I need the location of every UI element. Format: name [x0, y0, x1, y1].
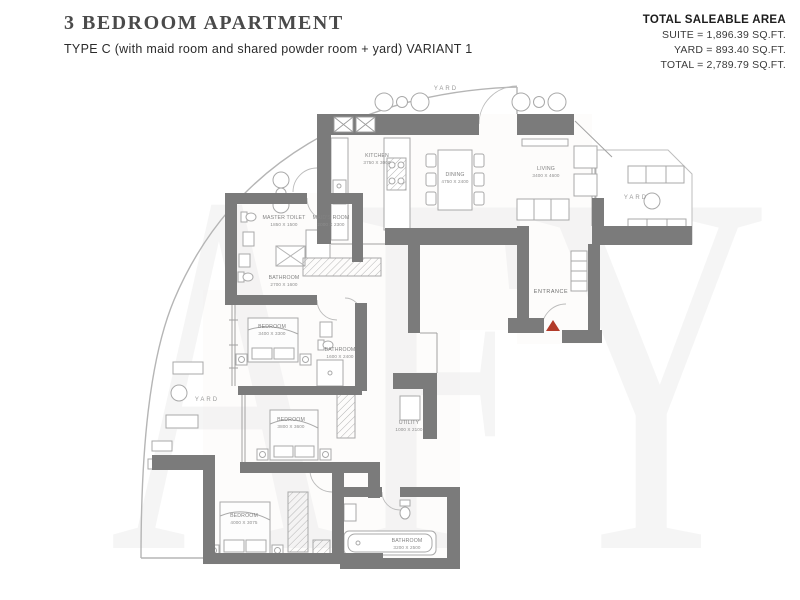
floor-plan-drawing: AFY [0, 0, 800, 600]
room-label-bathroom-3: BATHROOM [392, 538, 423, 544]
area-heading: TOTAL SALEABLE AREA [643, 14, 786, 26]
room-label-living: LIVING [537, 166, 555, 172]
wardrobe-icon [303, 258, 381, 276]
area-suite: SUITE = 1,896.39 SQ.FT. [643, 29, 786, 41]
cabinet-icon [313, 540, 330, 554]
washer-icon [400, 396, 420, 420]
header: 3 BEDROOM APARTMENT TYPE C (with maid ro… [64, 12, 473, 56]
svg-text:1850 X 1500: 1850 X 1500 [270, 222, 298, 227]
svg-text:3400 X 3300: 3400 X 3300 [258, 331, 286, 336]
svg-text:3750 X 3000: 3750 X 3000 [363, 160, 391, 165]
svg-text:1000 X 2100: 1000 X 2100 [395, 427, 423, 432]
wardrobe-icon [337, 392, 355, 438]
yard-label-top: YARD [434, 86, 458, 92]
svg-text:2000 X 2300: 2000 X 2300 [317, 222, 345, 227]
room-label-bedroom-3: BEDROOM [230, 513, 258, 519]
area-yard: YARD = 893.40 SQ.FT. [643, 44, 786, 56]
room-label-kitchen: KITCHEN [365, 153, 389, 159]
saleable-area-summary: TOTAL SALEABLE AREA SUITE = 1,896.39 SQ.… [643, 14, 786, 71]
room-label-bathroom-2: BATHROOM [325, 347, 356, 353]
entry-closet-icon [571, 251, 587, 291]
room-label-bathroom-1: BATHROOM [269, 275, 300, 281]
room-label-dining: DINING [445, 172, 464, 178]
entrance-label: ENTRANCE [534, 289, 568, 295]
svg-text:2700 X 1600: 2700 X 1600 [270, 282, 298, 287]
room-label-bedroom-1: BEDROOM [258, 324, 286, 330]
page-subtitle: TYPE C (with maid room and shared powder… [64, 42, 473, 56]
svg-text:4000 X 3075: 4000 X 3075 [230, 520, 258, 525]
svg-text:1600 X 2400: 1600 X 2400 [326, 354, 354, 359]
room-label-master-toilet: MASTER TOILET [263, 215, 307, 221]
room-label-maids-room: MAID'S ROOM [313, 215, 350, 221]
room-label-bedroom-2: BEDROOM [277, 417, 305, 423]
svg-text:3800 X 3600: 3800 X 3600 [277, 424, 305, 429]
svg-text:3200 X 2500: 3200 X 2500 [393, 545, 421, 550]
room-label-utility: UTILITY [399, 420, 420, 426]
floor-plan-sheet: AFY [0, 0, 800, 600]
yard-label-left: YARD [195, 397, 219, 403]
area-total: TOTAL = 2,789.79 SQ.FT. [643, 59, 786, 71]
page-title: 3 BEDROOM APARTMENT [64, 12, 473, 35]
yard-label-right: YARD [624, 195, 648, 201]
svg-text:4750 X 2400: 4750 X 2400 [441, 179, 469, 184]
svg-text:3400 X 4600: 3400 X 4600 [532, 173, 560, 178]
wardrobe-icon [288, 492, 308, 552]
